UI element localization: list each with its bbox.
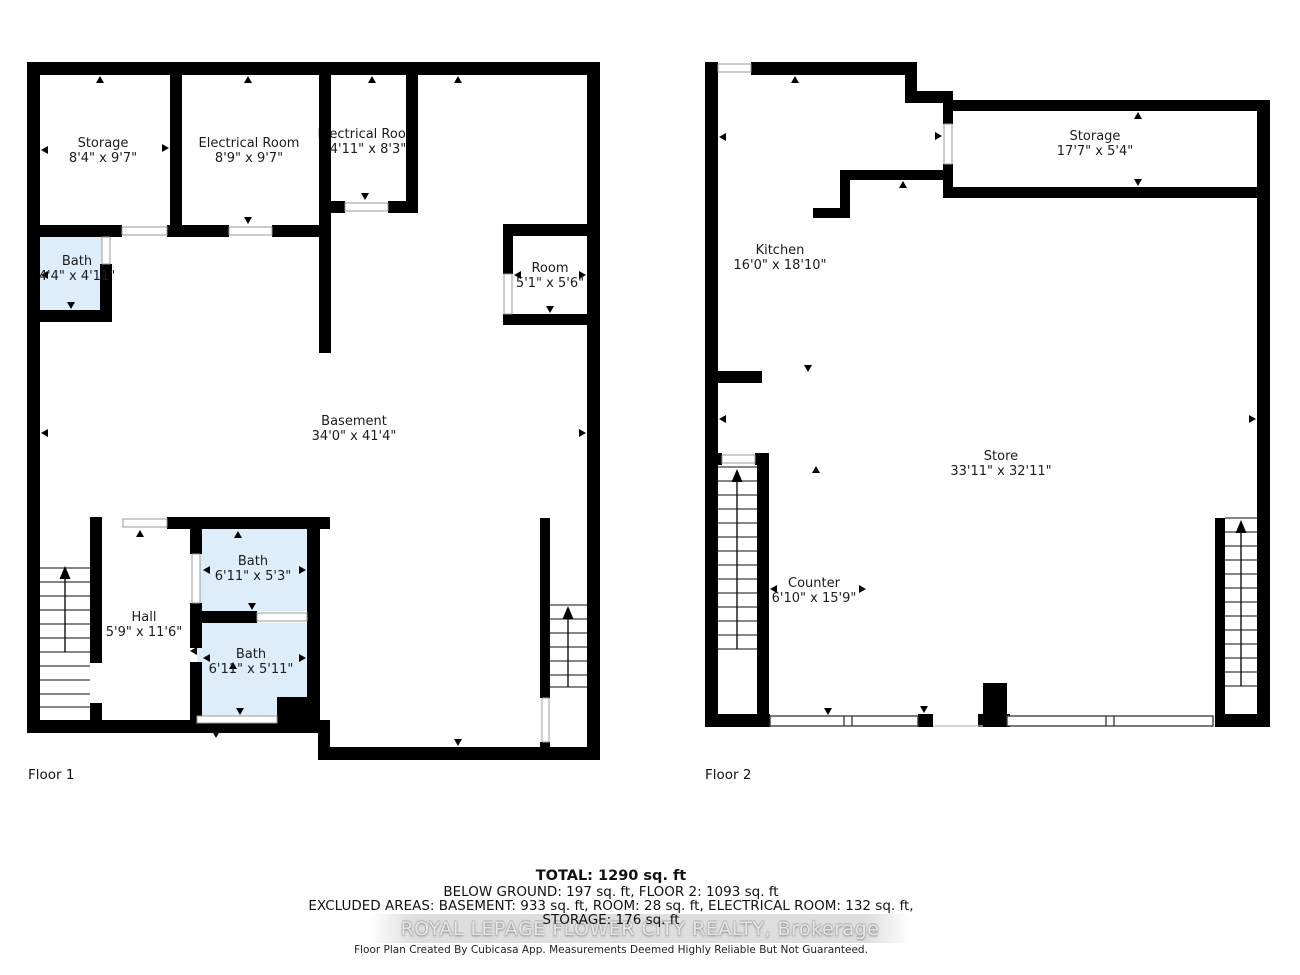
room-label-kitchen-f2: Kitchen 16'0" x 18'10" <box>734 244 827 273</box>
floor2-walls <box>705 62 1270 727</box>
floor1-tag: Floor 1 <box>28 767 74 783</box>
room-dims: 4'11" x 8'3" <box>318 143 419 158</box>
room-name: Storage <box>1057 130 1133 145</box>
stairs-floor1-right <box>550 605 587 687</box>
room-dims: 16'0" x 18'10" <box>734 259 827 274</box>
room-name: Room <box>516 262 584 277</box>
stairs-floor2-left <box>718 467 757 649</box>
summary-total: TOTAL: 1290 sq. ft <box>0 869 1222 883</box>
floorplan-page: Storage 8'4" x 9'7" Electrical Room 8'9"… <box>0 0 1300 975</box>
room-name: Electrical Room <box>199 137 300 152</box>
room-name: Store <box>950 450 1051 465</box>
room-label-hall-f1: Hall 5'9" x 11'6" <box>106 611 182 640</box>
summary-areas-line: BELOW GROUND: 197 sq. ft, FLOOR 2: 1093 … <box>0 885 1222 899</box>
room-label-storage-f2: Storage 17'7" x 5'4" <box>1057 130 1133 159</box>
room-dims: 34'0" x 41'4" <box>312 430 397 445</box>
stairs-floor2-right <box>1225 518 1257 686</box>
room-dims: 4'4" x 4'11" <box>39 270 115 285</box>
room-dims: 8'4" x 9'7" <box>69 152 137 167</box>
room-name: Bath <box>215 555 291 570</box>
room-dims: 6'11" x 5'3" <box>215 570 291 585</box>
room-label-store-f2: Store 33'11" x 32'11" <box>950 450 1051 479</box>
room-dims: 6'10" x 15'9" <box>772 592 857 607</box>
room-label-counter-f2: Counter 6'10" x 15'9" <box>772 577 857 606</box>
room-dims: 8'9" x 9'7" <box>199 152 300 167</box>
window-mullions <box>844 716 1114 726</box>
room-name: Kitchen <box>734 244 827 259</box>
room-label-electrical-room-f1: Electrical Room 8'9" x 9'7" <box>199 137 300 166</box>
room-dims: 17'7" x 5'4" <box>1057 145 1133 160</box>
tick-right-icons <box>162 132 1256 662</box>
tick-left-icons <box>41 133 777 662</box>
room-label-bath-3-f1: Bath 6'11" x 5'11" <box>209 648 294 677</box>
stairs-floor1-left <box>40 568 90 707</box>
stairs-up-arrow-icons <box>60 469 1247 619</box>
summary-excluded-line-2: STORAGE: 176 sq. ft <box>0 913 1222 927</box>
room-label-basement-f1: Basement 34'0" x 41'4" <box>312 415 397 444</box>
room-dims: 33'11" x 32'11" <box>950 465 1051 480</box>
room-dims: 5'9" x 11'6" <box>106 626 182 641</box>
room-name: Storage <box>69 137 137 152</box>
summary-excluded-line: EXCLUDED AREAS: BASEMENT: 933 sq. ft, RO… <box>0 899 1222 913</box>
room-name: Counter <box>772 577 857 592</box>
room-label-storage-f1: Storage 8'4" x 9'7" <box>69 137 137 166</box>
room-label-bath-2-f1: Bath 6'11" x 5'3" <box>215 555 291 584</box>
bath-fill-areas <box>40 237 307 717</box>
disclaimer-text: Floor Plan Created By Cubicasa App. Meas… <box>0 944 1222 956</box>
room-dims: 6'11" x 5'11" <box>209 663 294 678</box>
room-label-bath-1-f1: Bath 4'4" x 4'11" <box>39 255 115 284</box>
floor1-walls <box>27 62 600 760</box>
room-label-electrical-room-2-f1: Electrical Room 4'11" x 8'3" <box>318 128 419 157</box>
room-name: Hall <box>106 611 182 626</box>
room-name: Bath <box>209 648 294 663</box>
floor2-tag: Floor 2 <box>705 767 751 783</box>
window-band <box>770 716 1213 726</box>
room-name: Basement <box>312 415 397 430</box>
room-name: Bath <box>39 255 115 270</box>
room-dims: 5'1" x 5'6" <box>516 277 584 292</box>
room-name: Electrical Room <box>318 128 419 143</box>
room-label-room-f1: Room 5'1" x 5'6" <box>516 262 584 291</box>
